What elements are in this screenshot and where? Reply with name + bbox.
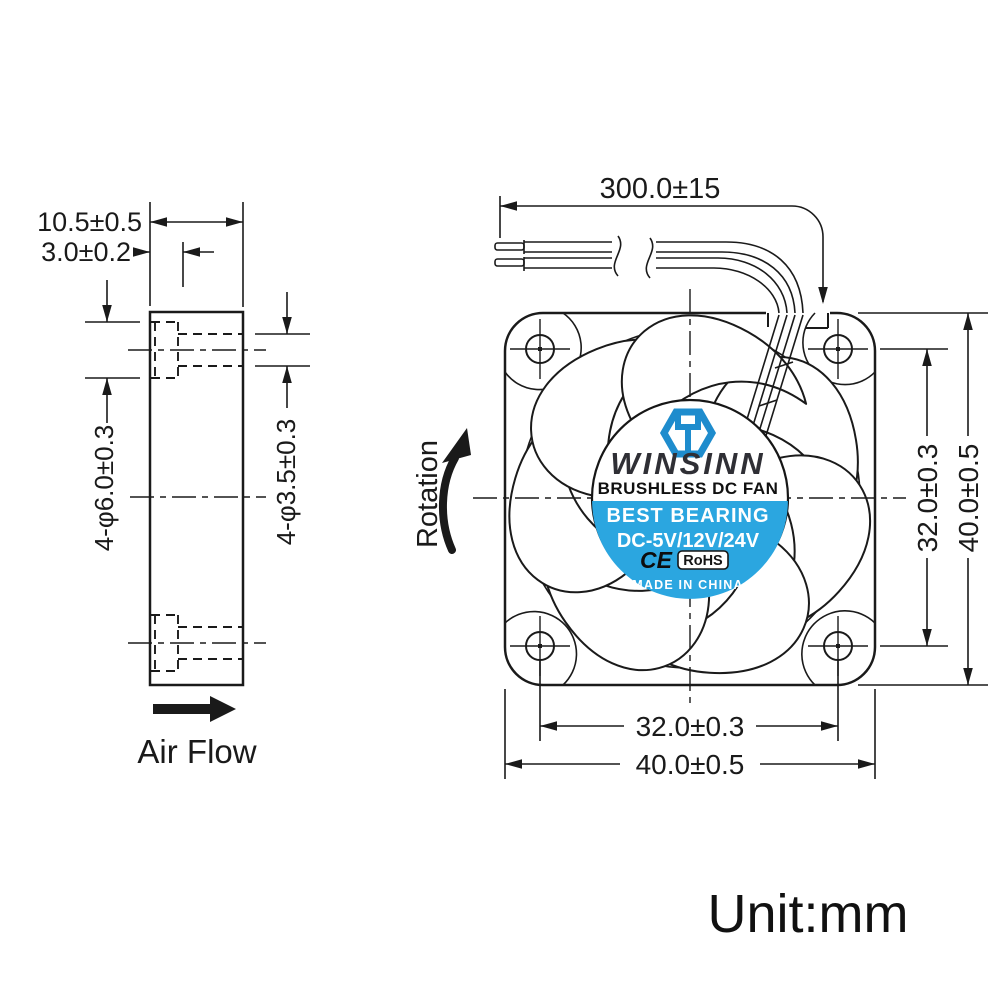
- cable-length-dim-label: 300.0±15: [600, 173, 721, 205]
- feature-label: BEST BEARING: [606, 505, 769, 527]
- dim-hole-pitch-vertical: 32.0±0.3: [880, 349, 948, 646]
- rotation-arrowhead-icon: [442, 428, 471, 463]
- fan-hub-label: WINSINN BRUSHLESS DC FAN BEST BEARING DC…: [592, 400, 788, 599]
- bare-wire-tip: [495, 243, 524, 250]
- fan-dimension-drawing: 10.5±0.5 3.0±0.2 4-φ6.0±0.3 4-φ3.5±0.3 A…: [0, 0, 1000, 1000]
- drawing-svg: 10.5±0.5 3.0±0.2 4-φ6.0±0.3 4-φ3.5±0.3 A…: [0, 0, 1000, 1000]
- ce-mark: CE: [640, 547, 673, 573]
- side-view-bottom-hole: [128, 615, 266, 671]
- rotation-indicator: Rotation: [412, 428, 471, 550]
- flange-dim-label: 3.0±0.2: [41, 237, 131, 267]
- cable-break-icon: [614, 236, 652, 278]
- dim-mount-hole: 4-φ6.0±0.3: [85, 280, 140, 551]
- height-dim-label: 40.0±0.5: [953, 444, 984, 553]
- voltage-label: DC-5V/12V/24V: [617, 530, 760, 552]
- cable-entry-gap: [766, 307, 830, 317]
- product-label: BRUSHLESS DC FAN: [598, 479, 779, 498]
- side-view: 10.5±0.5 3.0±0.2 4-φ6.0±0.3 4-φ3.5±0.3 A…: [37, 202, 310, 770]
- hole-pitch-h-label: 32.0±0.3: [636, 711, 745, 742]
- through-hole-dim-label: 4-φ3.5±0.3: [271, 419, 301, 546]
- width-dim-label: 40.0±0.5: [636, 749, 745, 780]
- rotation-label: Rotation: [412, 440, 444, 548]
- hole-pitch-v-label: 32.0±0.3: [912, 444, 943, 553]
- origin-label: MADE IN CHINA: [632, 578, 743, 592]
- air-flow: Air Flow: [137, 696, 256, 770]
- rotation-arrow-icon: [443, 458, 455, 550]
- air-flow-label: Air Flow: [137, 733, 256, 770]
- brand-label: WINSINN: [610, 446, 765, 481]
- dim-cable-length: 300.0±15: [500, 173, 828, 304]
- side-view-body: [150, 312, 243, 685]
- mount-hole-dim-label: 4-φ6.0±0.3: [89, 425, 119, 552]
- lead-wire-cable: [495, 236, 803, 313]
- bare-wire-tip: [495, 259, 524, 266]
- front-view: WINSINN BRUSHLESS DC FAN BEST BEARING DC…: [412, 173, 988, 780]
- side-view-top-hole: [128, 322, 266, 378]
- air-flow-arrow-icon: [153, 696, 236, 722]
- dim-through-hole: 4-φ3.5±0.3: [255, 292, 310, 545]
- thickness-dim-label: 10.5±0.5: [37, 207, 142, 237]
- unit-label: Unit:mm: [708, 884, 909, 944]
- dim-hole-pitch-horizontal: 32.0±0.3: [540, 660, 838, 742]
- rohs-mark: RoHS: [683, 553, 723, 569]
- dim-flange: 3.0±0.2: [41, 237, 214, 287]
